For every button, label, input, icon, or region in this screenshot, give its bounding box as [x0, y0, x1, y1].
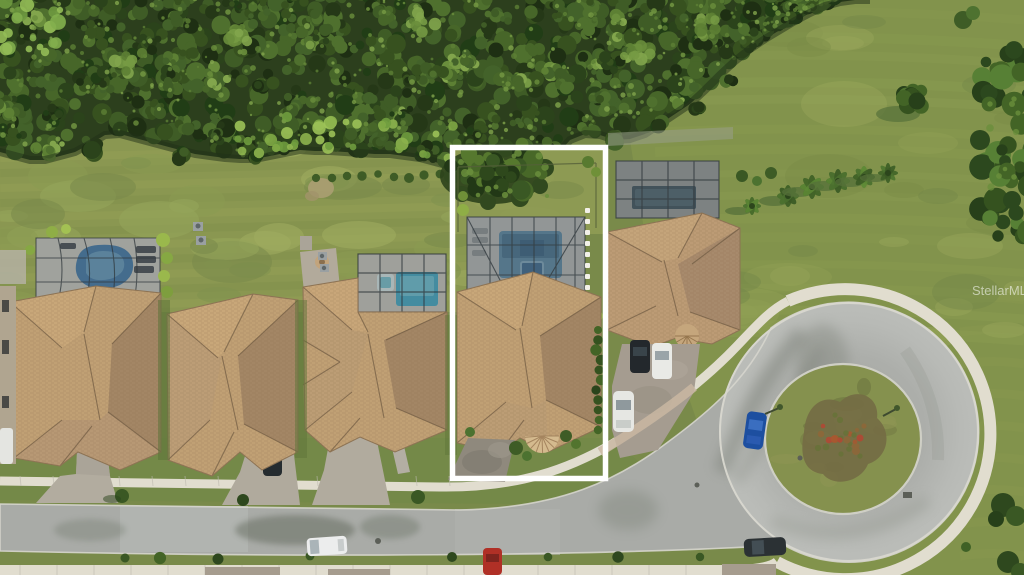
svg-text:StellarMLS: StellarMLS	[972, 283, 1024, 298]
